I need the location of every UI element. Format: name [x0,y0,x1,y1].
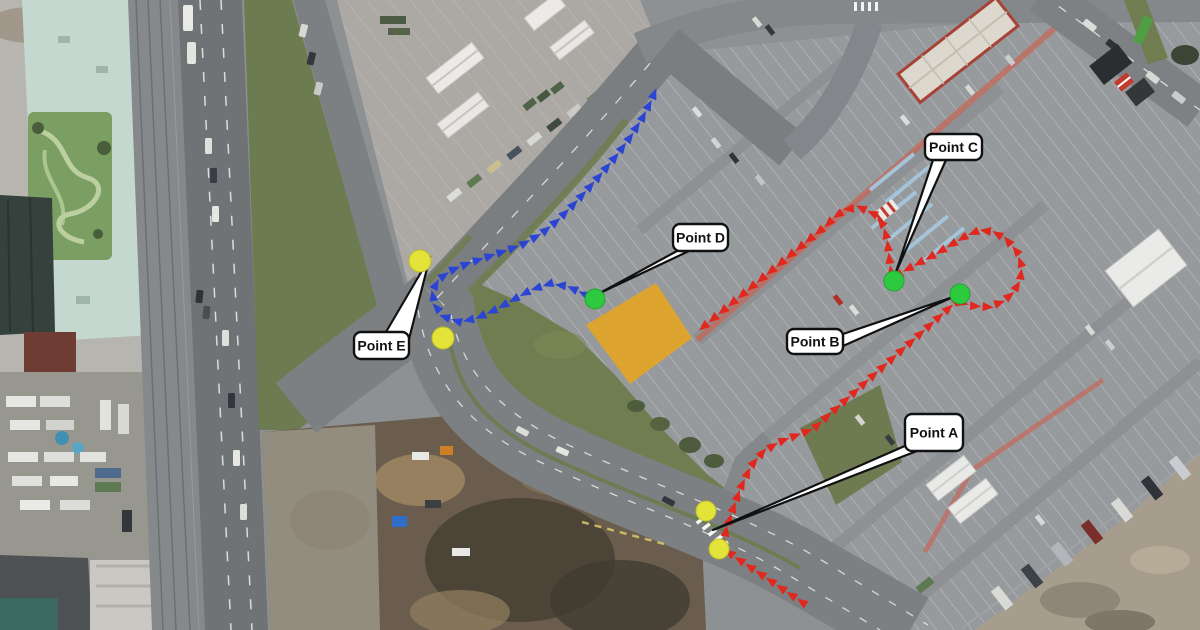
route-arrow [883,240,893,252]
route-arrow [495,246,508,258]
route-arrow [507,241,521,253]
route-arrow [437,268,451,282]
route-arrow [923,251,937,264]
point-label-e-text: Point E [357,338,405,354]
route-arrow [766,439,780,453]
route-arrow [944,238,958,251]
point-c-leader [896,160,946,272]
route-arrow [993,297,1006,309]
yellow-marker-1[interactable] [409,250,431,272]
route-arrow [616,140,630,154]
map-canvas: Point APoint BPoint CPoint DPoint E [0,0,1200,630]
green-marker-2[interactable] [884,271,904,291]
route-arrow [623,130,637,144]
point-label-a[interactable]: Point A [905,414,963,451]
route-arrow [982,302,994,312]
route-arrow [529,282,542,294]
route-arrow [496,299,510,312]
route-arrow [696,320,710,334]
route-arrow [518,236,532,249]
annotations-overlay: Point APoint BPoint CPoint DPoint E [0,0,1200,630]
point-label-a-text: Point A [910,425,958,441]
route-arrow [880,227,892,240]
route-arrow [448,263,462,276]
point-label-c-text: Point C [929,139,978,155]
route-arrow [728,500,740,514]
route-arrow [763,574,777,588]
route-arrow [485,305,499,318]
point-label-d[interactable]: Point D [673,224,728,251]
route-arrow [438,311,451,323]
route-arrow [462,314,475,325]
route-arrow [736,477,749,491]
route-arrow [460,258,474,271]
point-label-e[interactable]: Point E [354,332,409,359]
route-arrow [967,226,981,239]
route-arrow [637,109,650,123]
route-arrow [754,272,768,286]
route-arrow [777,434,791,446]
route-arrow [756,445,770,459]
route-arrow [743,560,757,574]
green-marker-1[interactable] [585,289,605,309]
route-arrow [884,252,894,264]
route-arrow [990,227,1004,240]
route-arrow [854,201,868,214]
route-arrow [979,225,991,235]
route-arrow [1001,234,1015,248]
point-label-d-text: Point D [676,230,725,246]
route-arrow [1016,268,1026,280]
route-arrow [518,287,532,300]
yellow-marker-4[interactable] [709,539,729,559]
route-arrow [753,567,767,581]
route-arrow [732,553,746,567]
green-marker-3[interactable] [950,284,970,304]
route-arrow [541,278,554,290]
route-arrow [794,595,808,609]
route-arrow [565,282,579,295]
route-arrow [955,232,969,245]
route-arrow [774,581,788,595]
route-arrow [732,489,744,503]
point-label-c[interactable]: Point C [925,134,982,160]
route-arrow [643,98,656,112]
red-route-c-to-staging [696,201,896,334]
route-arrow [529,230,543,243]
route-arrow [970,301,982,311]
route-arrow [630,120,644,134]
point-label-b-text: Point B [791,334,840,350]
route-arrow [865,207,879,220]
point-label-b[interactable]: Point B [787,329,843,354]
route-arrow [507,293,521,306]
route-arrow [427,289,438,302]
route-arrow [789,429,803,441]
route-arrow [1011,279,1024,293]
route-arrow [741,466,754,480]
route-arrow [715,304,729,318]
point-d-leader [600,251,689,293]
route-arrow [801,425,815,437]
route-arrow [484,250,497,262]
route-arrow [648,87,660,101]
route-arrow [842,204,854,214]
route-arrow [912,257,926,270]
route-arrow [472,254,485,266]
yellow-marker-2[interactable] [432,327,454,349]
blue-route-exit-d-via-e [427,87,660,327]
route-arrow [901,262,915,275]
route-arrow [429,300,443,314]
route-arrow [735,288,749,302]
route-arrow [1009,243,1023,257]
route-arrow [450,315,463,327]
route-arrow [554,280,566,290]
route-arrow [784,588,798,602]
route-arrow [934,244,948,257]
route-arrow [473,310,487,323]
yellow-marker-3[interactable] [696,501,716,521]
